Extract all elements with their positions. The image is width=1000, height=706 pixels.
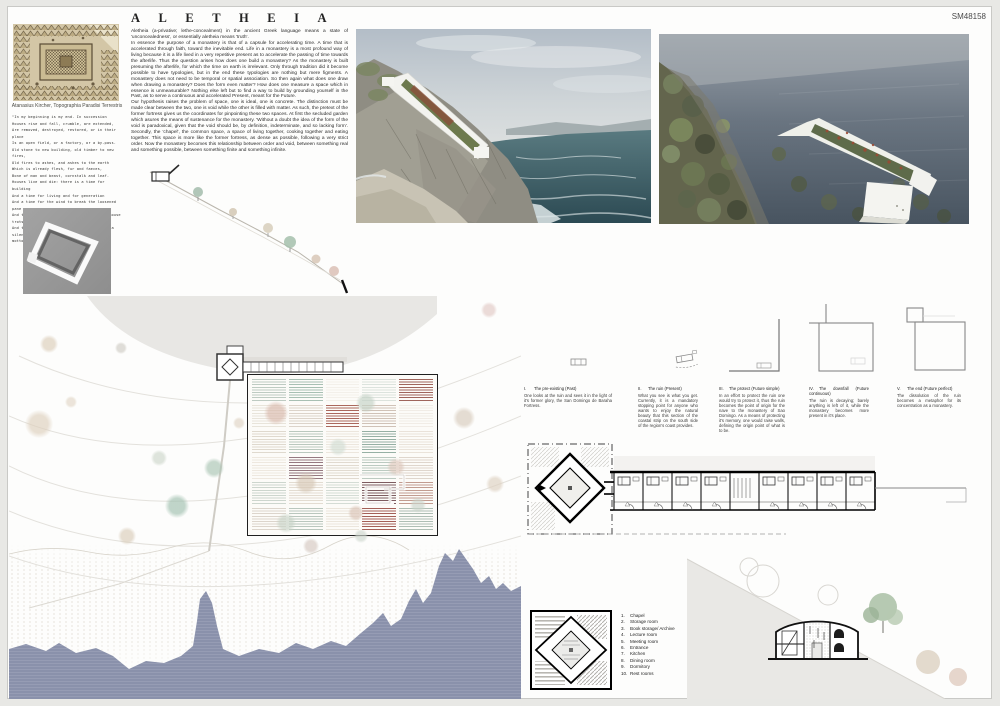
project-title: ALETHEIA — [131, 11, 357, 26]
diagram-caption-2: II.The ruin (Present) What you see is wh… — [638, 386, 698, 428]
diagram-numeral: II. — [638, 386, 648, 391]
garden-plot — [247, 374, 438, 536]
diagram-title: The ruin (Present) — [648, 386, 682, 391]
section-building-icon — [152, 165, 179, 181]
beige-tree — [916, 650, 940, 674]
section-building — [768, 622, 868, 660]
section-trees — [193, 187, 339, 276]
pink-tree — [949, 668, 967, 686]
presentation-board: Atanasius Kircher, Topographia Paradisi … — [7, 6, 992, 699]
footpath — [209, 380, 230, 551]
dormitory-cell — [788, 472, 813, 510]
dormitory-cell — [817, 472, 842, 510]
dormitory-cell — [701, 472, 726, 510]
diagram-3-protect — [721, 317, 783, 377]
diagram-2-ruin — [667, 343, 707, 373]
board-id: SM48158 — [888, 12, 986, 21]
essay-paragraph-1: In essence the purpose of a monastery is… — [131, 41, 348, 101]
diagram-caption-3: III.The protect (Future simple) In an ef… — [719, 386, 785, 433]
diagram-5-end — [899, 304, 973, 376]
dormitory-cell — [614, 472, 639, 510]
diagram-numeral: III. — [719, 386, 729, 391]
diagram-numeral: V. — [897, 386, 907, 391]
diagram-caption-5: V.The end (Future perfect) The dissoluti… — [897, 386, 961, 408]
dormitory-cell — [672, 472, 697, 510]
stair-hall — [730, 472, 750, 510]
essay-text: Aletheia (a-privative; lethe-concealment… — [131, 29, 348, 154]
diagram-body: In an effort to protect the ruin one wou… — [719, 393, 785, 434]
essay-paragraph-2: Our hypothesis raises the problem of spa… — [131, 100, 348, 154]
photo-aerial-view — [659, 34, 969, 224]
diagram-body: One looks at the ruin and sees it in the… — [524, 393, 612, 408]
dormitory-cell — [846, 472, 871, 510]
site-plan — [9, 296, 521, 699]
chapel-detail-plan — [526, 607, 616, 695]
diagram-title: The pre-existing (Past) — [534, 386, 576, 391]
diagram-caption-1: I.The pre-existing (Past) One looks at t… — [524, 386, 612, 408]
diagram-caption-4: IV.The downfall (Future continuous) The … — [809, 386, 869, 418]
engraving-caption: Atanasius Kircher, Topographia Paradisi … — [11, 103, 123, 109]
kircher-engraving — [13, 24, 119, 101]
diagram-numeral: I. — [524, 386, 534, 391]
dormitory-cell — [643, 472, 668, 510]
site-section-sketch — [138, 162, 358, 297]
photo-coastline-view — [356, 29, 651, 223]
diagram-title: The protect (Future simple) — [729, 386, 780, 391]
dormitory-cell — [759, 472, 784, 510]
massing-render — [23, 208, 111, 294]
essay-intro: Aletheia (a-privative; lethe-concealment… — [131, 29, 348, 41]
monastery-floor-plan — [526, 436, 971, 541]
diagram-body: The dissolution of the ruin becomes a me… — [897, 393, 961, 408]
building-section — [687, 551, 999, 699]
green-tree — [863, 593, 903, 633]
ruin-footprint — [248, 375, 439, 537]
diagram-4-downfall — [805, 304, 879, 376]
diagram-title: The end (Future perfect) — [907, 386, 952, 391]
diagram-body: What you see is what you get. Currently,… — [638, 393, 698, 429]
diagram-body: The ruin is decaying; barely anything is… — [809, 398, 869, 418]
diagram-1-pre-existing — [559, 344, 599, 374]
